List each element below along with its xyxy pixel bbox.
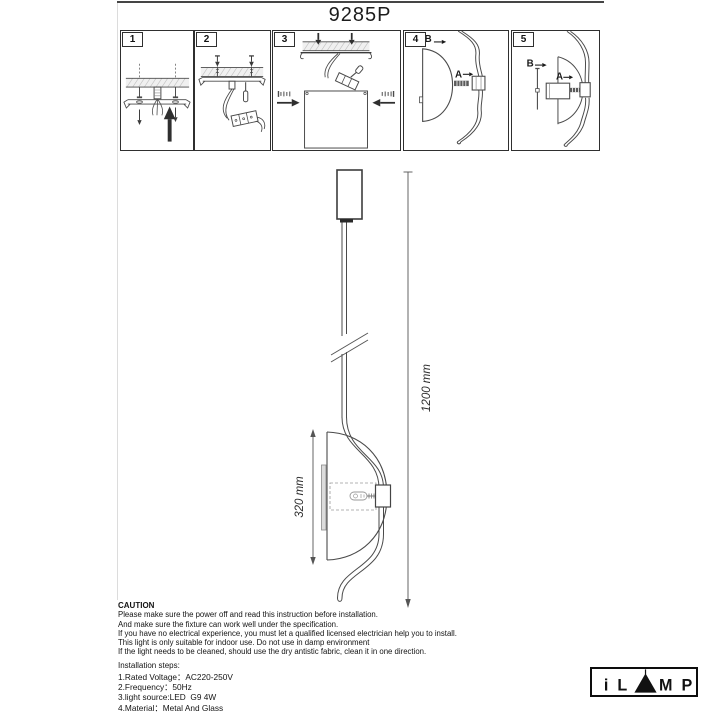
brand-logo: i L M P (590, 667, 698, 697)
logo-letter-l: L (617, 677, 627, 695)
page-top-rule (117, 1, 604, 3)
spec-light-source: 3.light source:LED G9 4W (118, 692, 418, 702)
shade-height-dimension-label: 320 mm (294, 476, 306, 518)
step-number-badge: 1 (122, 32, 143, 47)
logo-letter-i: i (604, 677, 609, 695)
caution-section: CAUTION Please make sure the power off a… (118, 601, 623, 670)
caution-line: This light is only suitable for indoor u… (118, 638, 623, 647)
spec-list: 1.Rated Voltage：AC220-250V 2.Frequency：5… (118, 672, 418, 713)
step-1-diagram (121, 31, 193, 150)
step-4-diagram: B A (404, 31, 508, 150)
installation-steps-heading: Installation steps: (118, 661, 623, 670)
rod-break-mark (331, 333, 368, 355)
caution-line: If the light needs to be cleaned, should… (118, 647, 623, 656)
caution-line: And make sure the fixture can work well … (118, 620, 623, 629)
step4-label-a: A (455, 69, 462, 80)
step-panel-4: 4 B A (403, 30, 509, 151)
step-5-diagram: B A (512, 31, 599, 150)
step5-label-b: B (527, 59, 534, 70)
step-number-badge: 5 (513, 32, 534, 47)
logo-letter-m: M (659, 677, 672, 695)
ceiling-canopy (337, 170, 362, 219)
caution-heading: CAUTION (118, 601, 623, 610)
step-3-diagram (273, 31, 400, 150)
logo-letter-p: P (682, 677, 693, 695)
lamp-triangle-icon (634, 673, 656, 692)
lamp-dimension-drawing: 1200 mm 320 mm (280, 165, 450, 615)
step-number-badge: 3 (274, 32, 295, 47)
step-panel-3: 3 (272, 30, 401, 151)
step-number-badge: 4 (405, 32, 426, 47)
step-panel-1: 1 (120, 30, 194, 151)
step5-label-a: A (556, 71, 563, 82)
ilamp-logo-mark: i L M P (592, 669, 696, 695)
rod-connector (376, 485, 391, 507)
glass-panel-edge (322, 465, 327, 530)
step-number-badge: 2 (196, 32, 217, 47)
caution-line: Please make sure the power off and read … (118, 610, 623, 619)
page-left-edge (117, 3, 118, 600)
spec-frequency: 2.Frequency：50Hz (118, 682, 418, 692)
step-panel-2: 2 (194, 30, 271, 151)
spec-material: 4.Material：Metal And Glass (118, 703, 418, 713)
spec-rated-voltage: 1.Rated Voltage：AC220-250V (118, 672, 418, 682)
page-title: 9285P (118, 4, 602, 27)
caution-line: If you have no electrical experience, yo… (118, 629, 623, 638)
overall-height-dimension-label: 1200 mm (421, 364, 433, 412)
step-panel-5: 5 B A (511, 30, 600, 151)
g9-bulb (350, 492, 367, 500)
step-2-diagram (195, 31, 270, 150)
